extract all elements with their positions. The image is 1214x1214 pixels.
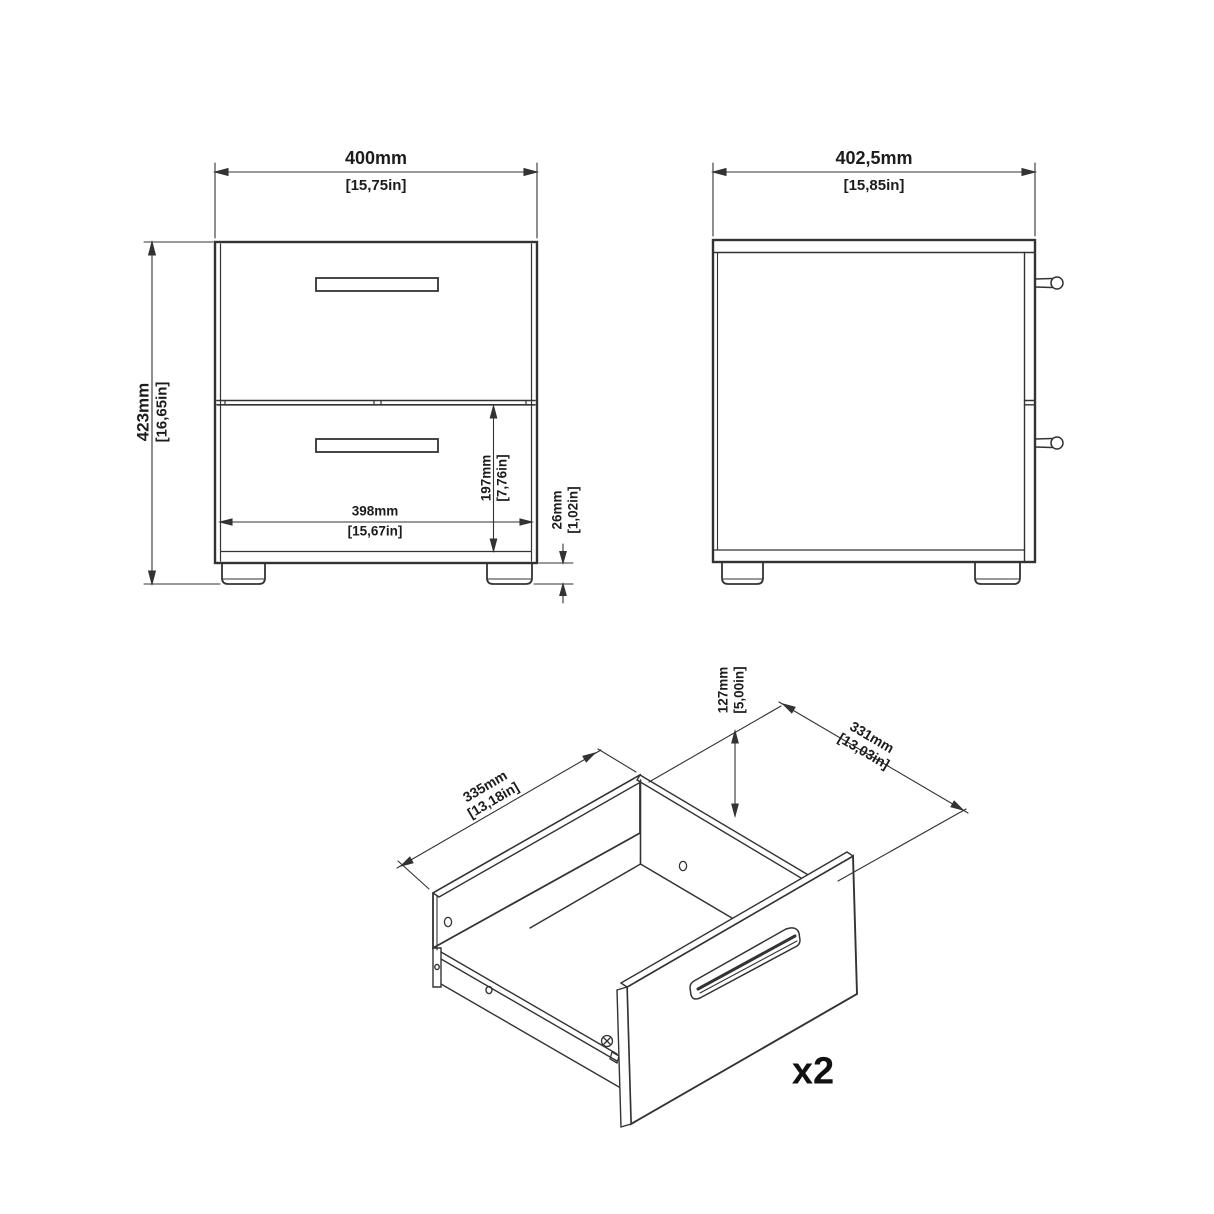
front-width-inches-label: [15,75in]	[346, 178, 407, 195]
front-width-label: 400mm	[345, 149, 407, 169]
front-width-dimension	[215, 163, 537, 238]
drawer-height-inches-label: [5,00in]	[731, 666, 747, 713]
drawer-quantity-label: x2	[792, 1051, 834, 1094]
front-drawer-height-label: 197mm	[478, 454, 494, 501]
front-inner-width-inches-label: [15,67in]	[348, 525, 403, 540]
side-depth-dimension	[713, 163, 1035, 236]
side-depth-inches-label: [15,85in]	[844, 178, 905, 195]
front-drawer-height-inches-label: [7,76in]	[494, 454, 510, 501]
drawer-height-dimension-label: 127mm [5,00in]	[715, 666, 746, 713]
front-foot-height-label: 26mm	[549, 486, 565, 533]
drawer-slide-rail	[433, 948, 619, 1087]
front-top-drawer-handle	[316, 278, 438, 291]
cam-screw-icon	[602, 1036, 620, 1064]
front-foot-height-dimension	[534, 544, 573, 603]
drawer-width-dimension	[649, 702, 968, 881]
technical-drawing-page: 400mm [15,75in] 423mm [16,65in] 398mm [1…	[0, 0, 1214, 1214]
side-knob-top	[1035, 277, 1063, 289]
front-feet	[222, 563, 532, 584]
side-depth-label: 402,5mm	[835, 149, 912, 169]
front-height-label: 423mm	[134, 382, 154, 443]
drawer-height-label: 127mm	[715, 666, 731, 713]
side-feet	[722, 563, 1020, 584]
front-drawer-height-dimension-label: 197mm [7,76in]	[478, 454, 509, 501]
front-foot-height-dimension-label: 26mm [1,02in]	[549, 486, 580, 533]
drawer-height-dimension	[732, 731, 738, 816]
front-bottom-drawer-handle	[316, 439, 438, 452]
front-inner-width-label: 398mm	[352, 505, 399, 520]
drawing-linework	[0, 0, 1214, 1214]
front-foot-height-inches-label: [1,02in]	[565, 486, 581, 533]
side-view-drawing	[713, 163, 1063, 584]
front-height-dimension-label: 423mm [16,65in]	[134, 382, 171, 443]
side-knob-bottom	[1035, 437, 1063, 449]
front-height-inches-label: [16,65in]	[153, 382, 170, 443]
